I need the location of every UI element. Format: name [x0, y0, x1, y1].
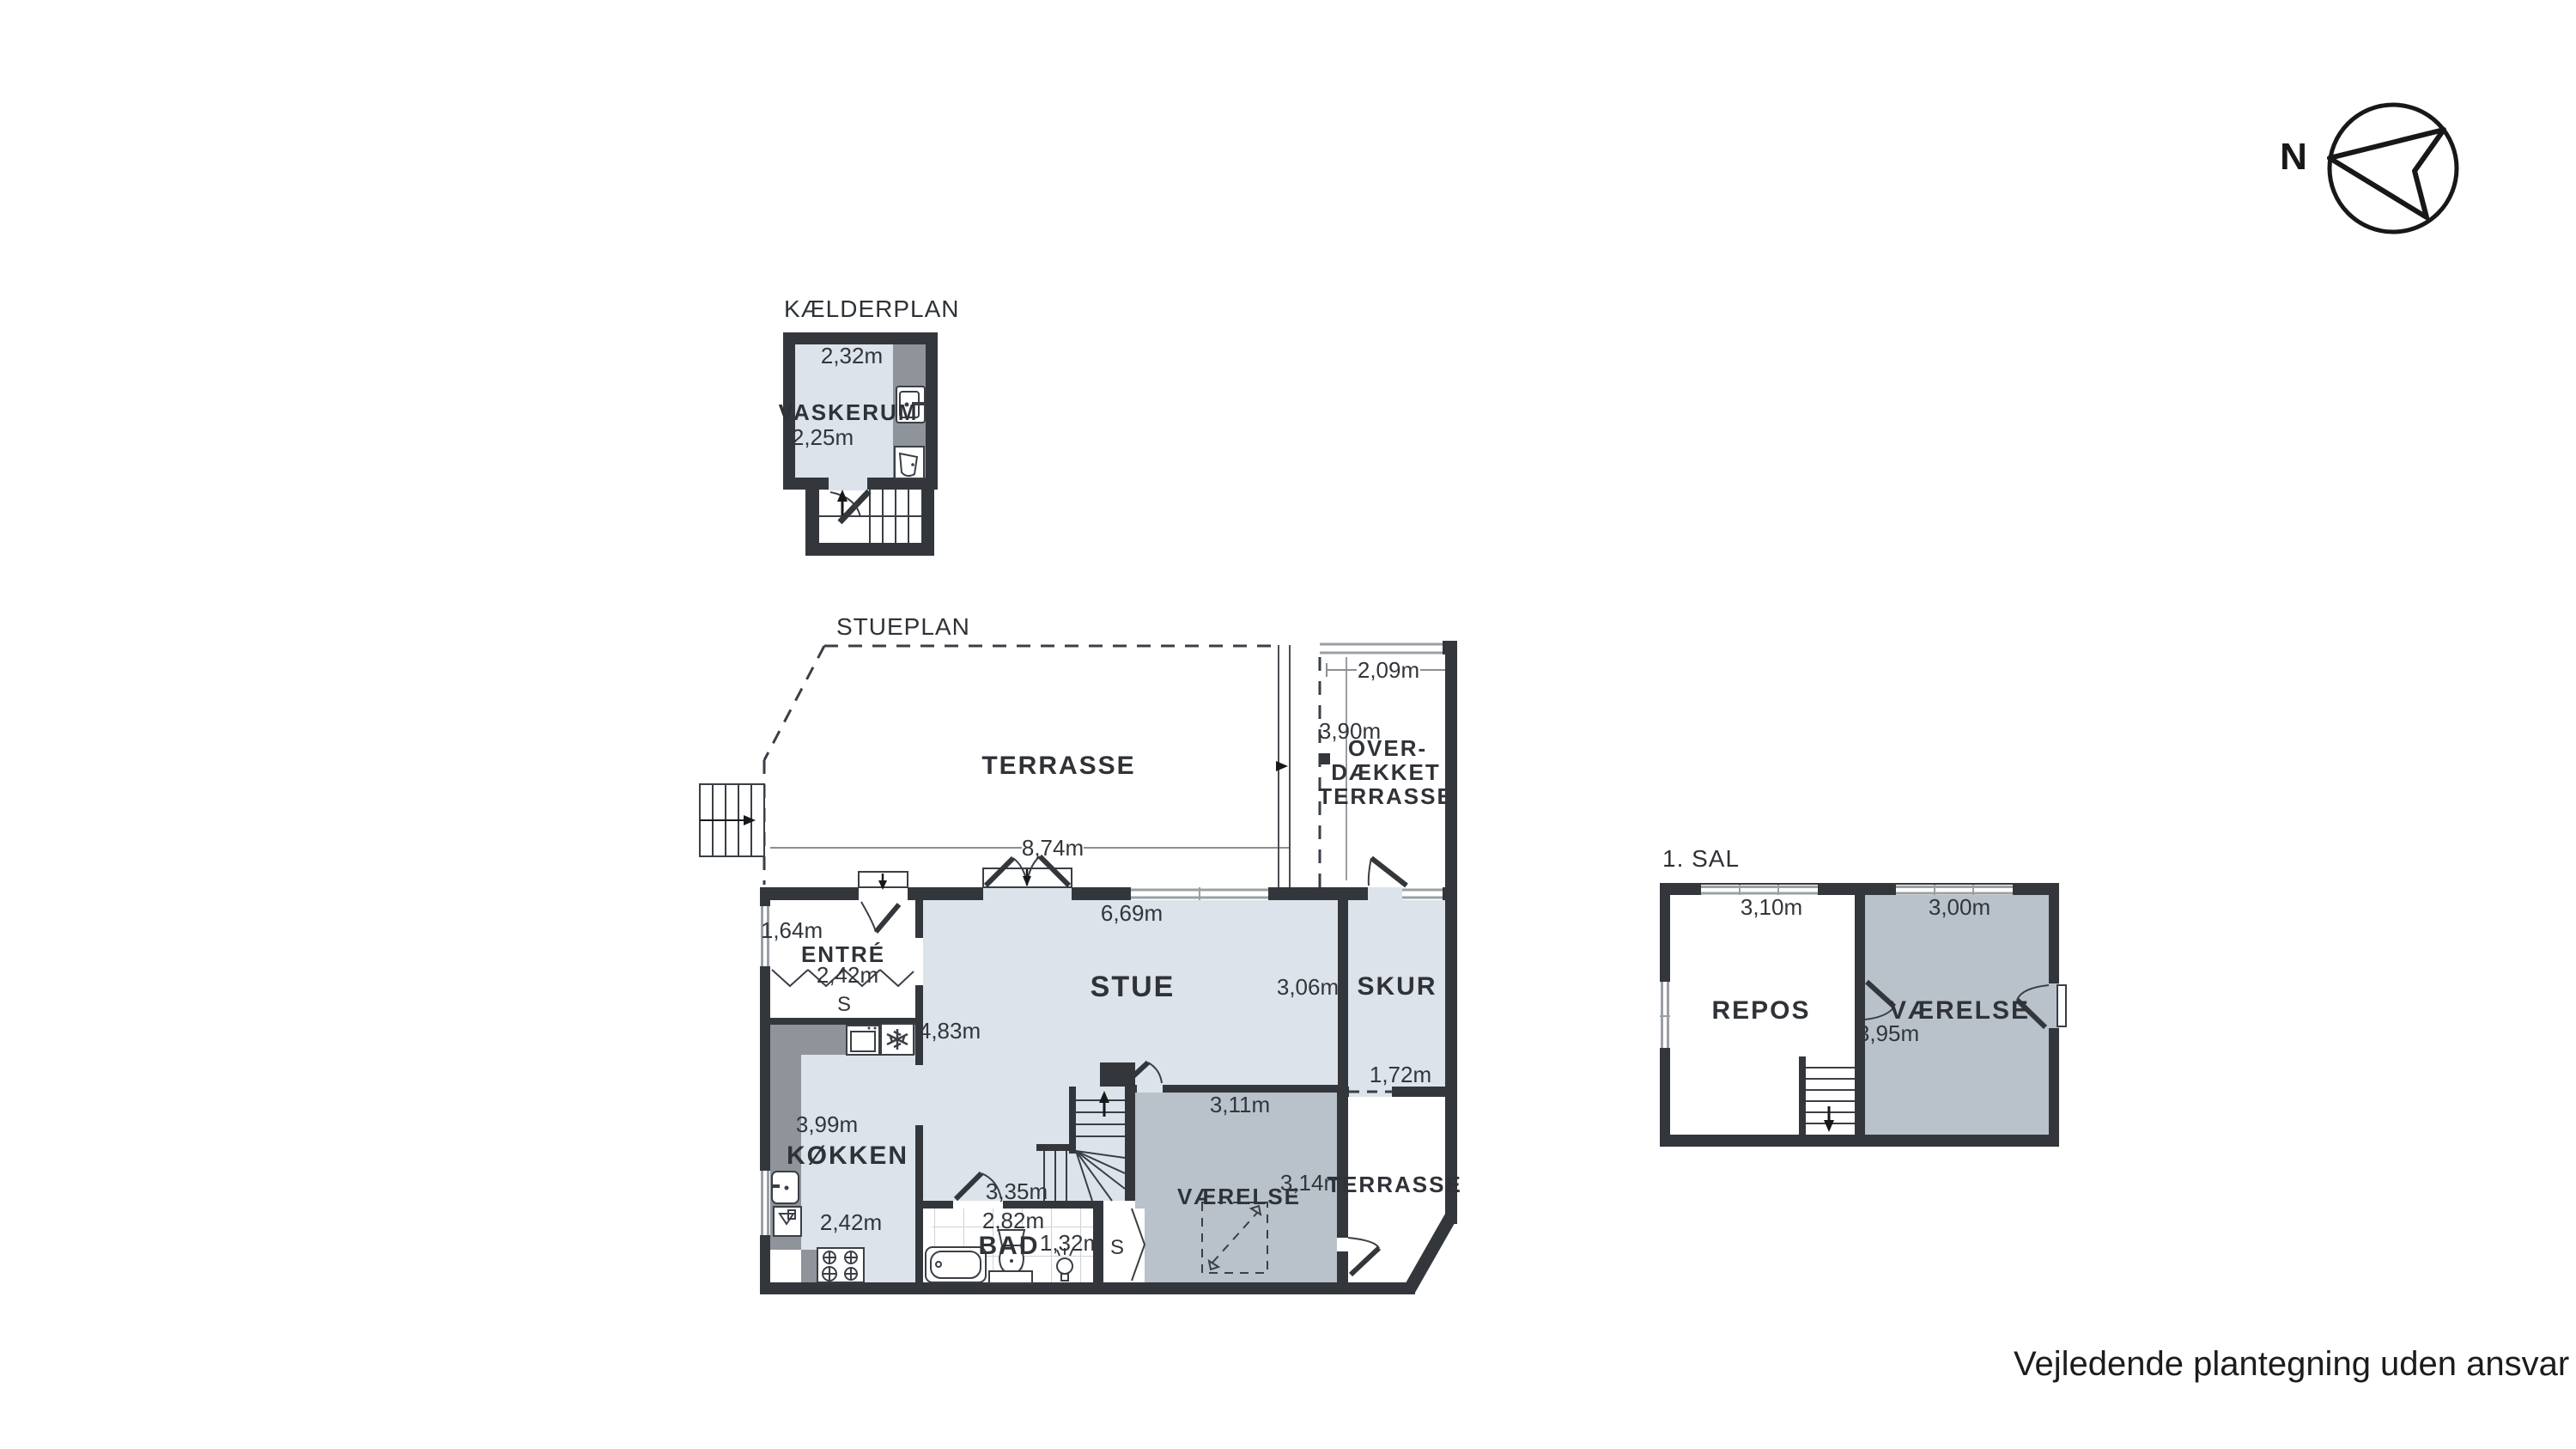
bath-vanity	[989, 1271, 1032, 1283]
skur-door-opening	[1368, 887, 1402, 900]
compass-north-label: N	[2280, 136, 2307, 178]
first-vaerelse-width-dim: 3,00m	[1929, 894, 1990, 920]
terrace-south-label: TERRASSE	[1327, 1172, 1462, 1197]
door-arc	[861, 902, 876, 932]
right-arrow-icon	[1276, 761, 1288, 771]
covered-terrace-width-dim: 2,09m	[1358, 657, 1419, 683]
basement-stair-wall-right	[921, 490, 934, 556]
skur-door	[1369, 858, 1406, 886]
basement-title: KÆLDERPLAN	[784, 295, 960, 322]
window	[1660, 982, 1670, 1048]
laundry-sink-icon	[895, 447, 924, 478]
french-door	[983, 856, 1072, 887]
terrace-width-dim: 8,74m	[1022, 835, 1084, 861]
compass: N	[2280, 105, 2457, 232]
bad-closet-label: S	[1110, 1236, 1124, 1259]
window	[1402, 887, 1443, 900]
bad-label: BAD	[979, 1232, 1040, 1260]
floorplan-canvas: N KÆLDERPLAN	[0, 0, 2576, 1449]
window	[760, 1171, 770, 1235]
bathtub-icon	[926, 1247, 986, 1282]
skur-label: SKUR	[1357, 972, 1437, 1001]
bad-right-dim: 1,32m	[1040, 1230, 1102, 1256]
vaerelse-door-opening	[1137, 1085, 1163, 1093]
exterior-stairs	[700, 784, 764, 856]
first-floor-title: 1. SAL	[1662, 845, 1740, 872]
floorplan-page: N KÆLDERPLAN	[0, 0, 2576, 1449]
first-floor-stairs	[1799, 1056, 1855, 1135]
entre-closet-label: S	[837, 993, 851, 1016]
terrace-door-opening	[1337, 1238, 1348, 1251]
disclaimer-text: Vejledende plantegning uden ansvar	[2014, 1345, 2569, 1383]
entry-door	[859, 872, 908, 932]
stair-dim: 3,35m	[986, 1178, 1048, 1204]
divider-wall-upper	[1855, 895, 1865, 979]
kitchen-sink-icon	[771, 1172, 799, 1203]
repos-label: REPOS	[1711, 996, 1810, 1025]
bad-width-dim: 2,82m	[982, 1208, 1044, 1233]
basement-door-opening	[829, 478, 867, 490]
ground-floor-plan: STUEPLAN 8,74m TERRASSE	[700, 613, 1462, 1294]
stue-right-dim: 3,06m	[1277, 974, 1339, 1000]
koekken-width-dim: 2,42m	[820, 1209, 882, 1235]
entre-width-dim: 2,42m	[817, 962, 878, 988]
stue-label: STUE	[1091, 971, 1176, 1003]
vaerelse-width-dim: 3,11m	[1210, 1092, 1270, 1117]
entre-depth-dim: 1,64m	[761, 917, 823, 943]
covered-terrace-label-3: TERRASSE	[1318, 783, 1454, 809]
first-floor-plan: 1. SAL	[1660, 845, 2066, 1147]
compass-arrow-icon	[2330, 130, 2444, 217]
oven-icon	[847, 1026, 879, 1055]
entry-door-opening	[859, 887, 908, 900]
koekken-label: KØKKEN	[787, 1142, 908, 1170]
vaskerum-label: VASKERUM	[779, 399, 919, 425]
terrace-post	[1319, 753, 1330, 764]
vaskerum-width-dim: 2,32m	[821, 343, 883, 368]
skur-dashed-opening	[1349, 1087, 1392, 1097]
dishwasher-icon	[774, 1207, 801, 1236]
stue-width-dim: 6,69m	[1101, 900, 1163, 926]
basement-stair-wall-bottom	[805, 543, 934, 556]
entre-stue-opening	[915, 938, 923, 985]
vaskerum-depth-dim: 2,25m	[792, 424, 854, 450]
window	[1131, 887, 1268, 900]
terrace-label: TERRASSE	[981, 752, 1135, 780]
ground-floor-title: STUEPLAN	[836, 613, 970, 640]
terrace-door	[1348, 1238, 1379, 1275]
koekken-opening	[915, 1065, 923, 1125]
stove-icon	[817, 1248, 864, 1282]
covered-terrace: 2,09m 3,90m OVER- DÆKKET TERRASSE	[1276, 641, 1457, 887]
skur-width-dim: 1,72m	[1370, 1062, 1431, 1087]
stue-depth-dim: 4,83m	[919, 1018, 981, 1044]
first-vaerelse-depth-dim: 3,95m	[1857, 1020, 1919, 1046]
repos-width-dim: 3,10m	[1741, 894, 1802, 920]
french-door-opening	[983, 887, 1072, 900]
covered-terrace-label-2: DÆKKET	[1331, 759, 1441, 785]
covered-terrace-label-1: OVER-	[1348, 735, 1427, 761]
basement-stairs	[819, 490, 921, 543]
fridge-icon	[881, 1024, 914, 1055]
up-arrow-icon	[837, 490, 848, 502]
basement-plan: KÆLDERPLAN	[779, 295, 960, 556]
koekken-depth-dim: 3,99m	[796, 1111, 858, 1137]
